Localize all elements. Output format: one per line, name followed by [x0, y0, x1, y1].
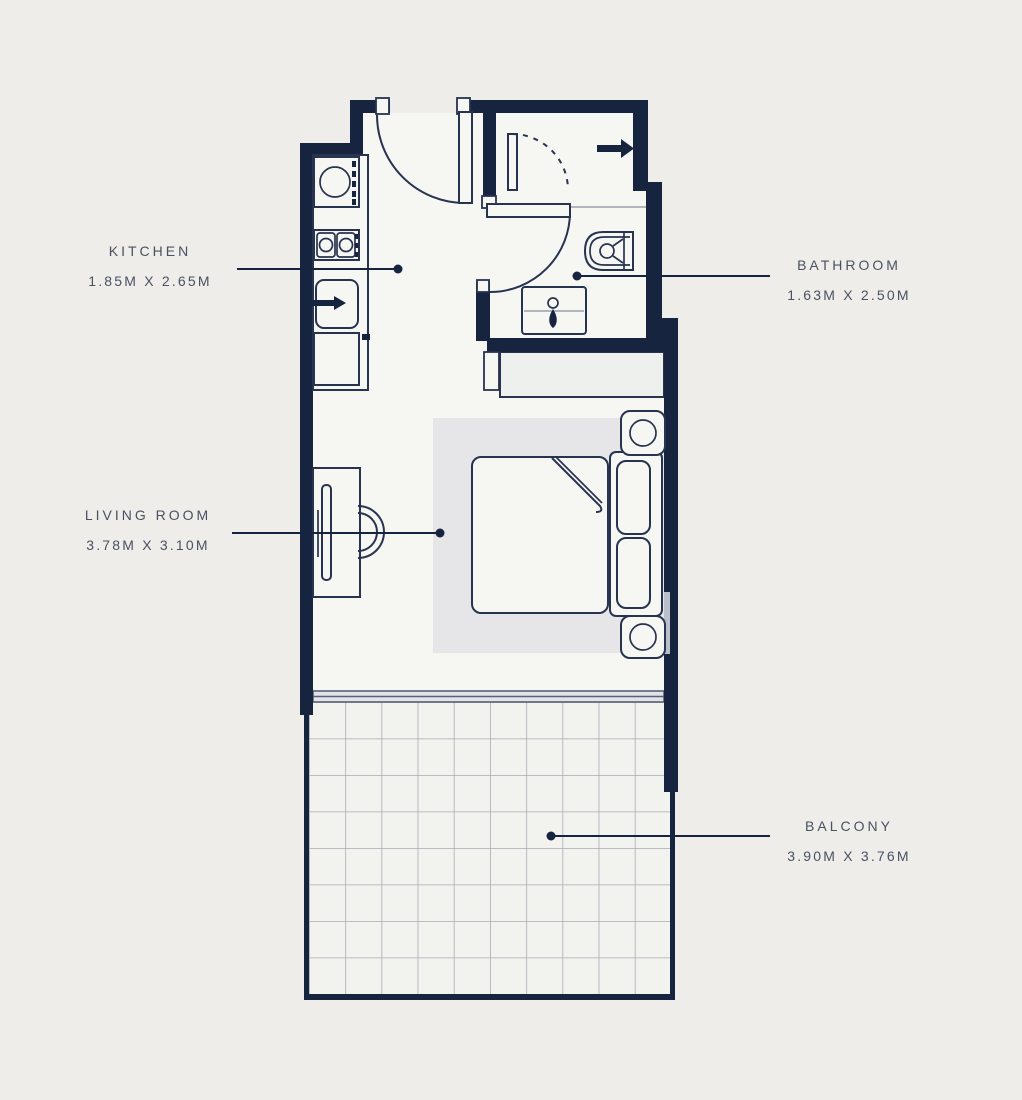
- living-room-label: LIVING ROOM 3.78M X 3.10M: [56, 507, 240, 553]
- balcony-name: BALCONY: [757, 818, 941, 834]
- balcony-label: BALCONY 3.90M X 3.76M: [757, 818, 941, 864]
- bathroom-label: BATHROOM 1.63M X 2.50M: [757, 257, 941, 303]
- wardrobe: [500, 352, 664, 397]
- balcony-dimensions: 3.90M X 3.76M: [757, 848, 941, 864]
- kitchen-dimensions: 1.85M X 2.65M: [58, 273, 242, 289]
- kitchen-label: KITCHEN 1.85M X 2.65M: [58, 243, 242, 289]
- living-room-name: LIVING ROOM: [56, 507, 240, 523]
- balcony-floor-tiles: [304, 702, 675, 1000]
- bathroom-dimensions: 1.63M X 2.50M: [757, 287, 941, 303]
- bathroom-name: BATHROOM: [757, 257, 941, 273]
- kitchen-sink-icon: [314, 157, 359, 207]
- kitchen-counter: [312, 155, 370, 390]
- living-room-dimensions: 3.78M X 3.10M: [56, 537, 240, 553]
- refrigerator-icon: [312, 280, 358, 328]
- nightstand-lamp-top: [621, 411, 665, 455]
- stove-icon: [314, 230, 359, 260]
- sliding-window: [313, 691, 664, 702]
- nightstand-lamp-bottom: [621, 616, 665, 658]
- double-bed-icon: [472, 452, 662, 616]
- toilet-icon: [585, 232, 633, 270]
- kitchen-name: KITCHEN: [58, 243, 242, 259]
- bathroom-sink-icon: [522, 287, 586, 334]
- floor-plan-page: KITCHEN 1.85M X 2.65M BATHROOM 1.63M X 2…: [0, 0, 1022, 1100]
